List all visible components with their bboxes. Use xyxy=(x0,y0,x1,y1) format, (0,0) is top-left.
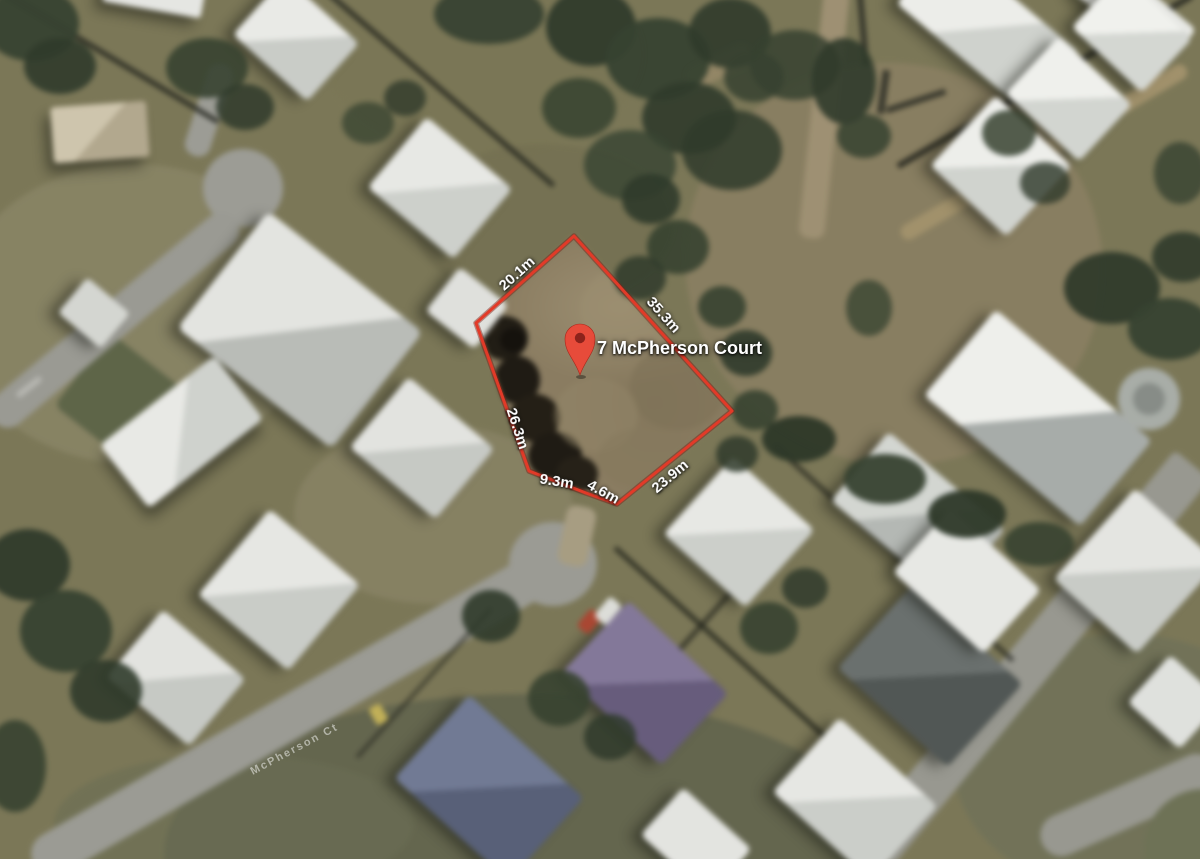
tree xyxy=(584,714,636,760)
tree xyxy=(846,280,892,336)
house-roof xyxy=(50,101,150,164)
tree xyxy=(1004,522,1074,566)
tree xyxy=(928,490,1006,538)
tree xyxy=(812,38,876,124)
tree xyxy=(1128,298,1200,360)
house-roof xyxy=(102,0,206,18)
tree xyxy=(342,102,394,144)
tree xyxy=(698,286,746,328)
aerial-photo xyxy=(0,0,1200,859)
tree xyxy=(837,114,891,158)
tree xyxy=(24,38,96,94)
tree xyxy=(716,436,758,472)
tree xyxy=(70,660,142,722)
tree xyxy=(782,568,828,608)
shrub xyxy=(500,328,526,352)
tree xyxy=(528,670,590,726)
tree xyxy=(1154,142,1200,204)
tree xyxy=(462,590,520,642)
tree xyxy=(740,602,798,654)
tree xyxy=(682,110,782,190)
tree xyxy=(844,454,926,504)
satellite-map[interactable]: 20.1m 35.3m 26.3m 9.3m 4.6m 23.9m McPher… xyxy=(0,0,1200,859)
tree xyxy=(542,78,616,138)
tree xyxy=(614,256,666,300)
tree xyxy=(0,720,46,812)
tree xyxy=(622,174,680,224)
pin-dot xyxy=(575,333,585,343)
pin-shadow xyxy=(576,375,586,379)
tree xyxy=(1152,232,1200,282)
tree xyxy=(1020,162,1070,204)
tree xyxy=(982,110,1036,156)
marker-address-label[interactable]: 7 McPherson Court xyxy=(597,338,762,358)
tree xyxy=(762,416,836,462)
tree xyxy=(384,80,426,116)
dirt-mottle xyxy=(598,428,688,488)
water-tank xyxy=(1133,383,1165,415)
tree xyxy=(216,84,274,130)
